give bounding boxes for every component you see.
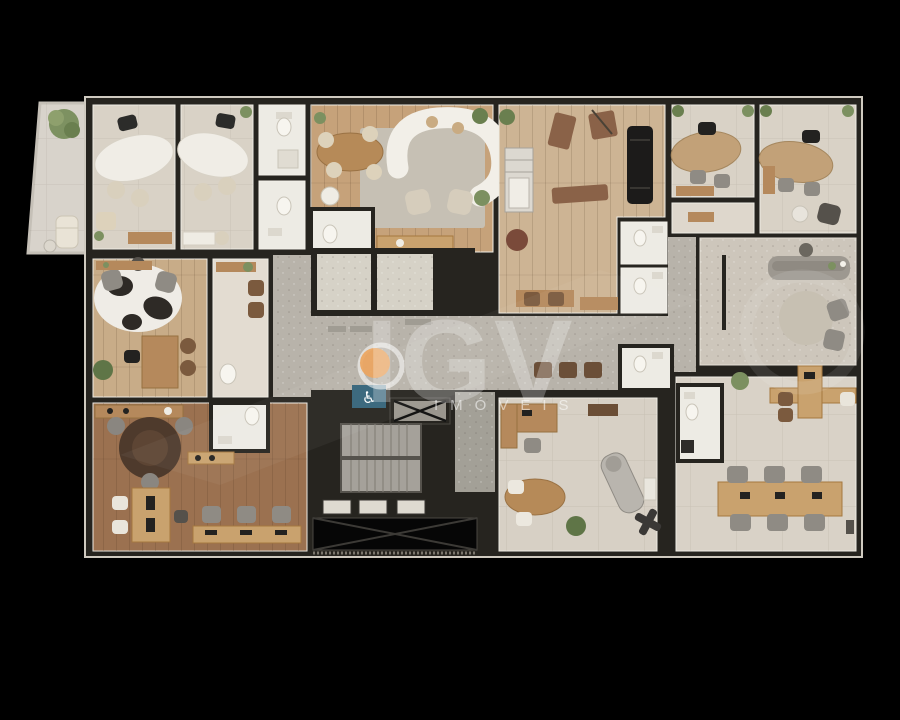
plant: [243, 262, 253, 272]
guest-chair: [690, 170, 706, 184]
guest-chair: [194, 183, 212, 201]
chair: [174, 510, 188, 523]
plant: [499, 109, 515, 125]
toilet: [277, 197, 291, 215]
chair: [248, 280, 264, 296]
corridor-wc: [620, 346, 672, 390]
plant: [474, 190, 490, 206]
terrace: [28, 103, 88, 253]
chair: [778, 408, 793, 422]
plant: [672, 105, 684, 117]
plant: [742, 105, 754, 117]
exercise-mat: [588, 110, 618, 140]
chair: [764, 466, 785, 483]
toilet: [220, 364, 236, 384]
chair: [107, 417, 125, 435]
guest-chair: [107, 181, 125, 199]
room-cowhide-office: [93, 257, 207, 397]
watermark-subtitle: IMÓVEIS: [434, 397, 581, 414]
chair: [366, 164, 382, 180]
floor-grille: [328, 326, 346, 332]
office-chair: [802, 130, 820, 143]
sink: [684, 392, 695, 399]
appliance: [681, 440, 694, 453]
cabinet: [846, 520, 854, 534]
chair: [202, 506, 221, 523]
monitor: [205, 530, 217, 535]
guest-chair: [714, 174, 730, 188]
pillow: [426, 116, 438, 128]
desk: [142, 336, 178, 388]
chair: [730, 514, 751, 531]
plant: [760, 105, 772, 117]
machine-box: [397, 500, 425, 514]
plant: [472, 108, 488, 124]
staircase: [341, 424, 421, 492]
guest-chair: [180, 360, 196, 376]
monitor: [146, 496, 155, 510]
chair: [508, 480, 524, 494]
office-chair: [698, 122, 716, 135]
chair: [215, 231, 229, 245]
hall-top-right: [672, 203, 754, 233]
toilet: [686, 404, 698, 420]
toilet: [323, 225, 337, 243]
lounge-chair: [96, 212, 116, 230]
chair: [524, 438, 541, 453]
plant: [103, 262, 109, 268]
toilet: [634, 230, 646, 246]
kitchenette-counter: [377, 236, 453, 250]
guest-chair: [804, 182, 820, 196]
toilet: [277, 118, 291, 136]
plant: [731, 372, 749, 390]
shaft-void: [313, 518, 477, 550]
room-office-c: [669, 105, 754, 197]
guest-chair: [778, 178, 794, 192]
chair: [516, 512, 532, 526]
pillow: [452, 122, 464, 134]
chair: [362, 126, 378, 142]
terrace-side-table: [44, 240, 56, 252]
monitor: [240, 530, 252, 535]
plant: [566, 516, 586, 536]
stool: [799, 243, 813, 257]
plant: [828, 262, 836, 270]
plant: [314, 112, 326, 124]
wall-segment: [722, 255, 726, 330]
lounge-bathroom: [311, 209, 373, 252]
chair: [801, 466, 822, 483]
plant: [240, 106, 252, 118]
room-office-b: [173, 105, 253, 249]
ladder-rack: [505, 148, 533, 212]
hallway-middle: [213, 259, 268, 397]
chair: [272, 506, 291, 523]
side-desk: [183, 232, 215, 245]
plant: [94, 231, 104, 241]
equipment-cart: [644, 478, 656, 500]
toilet: [634, 356, 646, 372]
chair: [237, 506, 256, 523]
sink: [652, 272, 663, 279]
chair: [778, 392, 793, 406]
chair: [318, 132, 334, 148]
floor-plan-canvas: ♿: [0, 0, 900, 720]
sink: [268, 228, 282, 236]
side-table: [792, 206, 808, 222]
office-chair: [124, 350, 140, 363]
chair: [840, 392, 855, 406]
monitor: [275, 530, 287, 535]
room-office-a: [90, 105, 178, 249]
guest-chair: [218, 177, 236, 195]
plant: [93, 360, 113, 380]
chair: [727, 466, 748, 483]
machine-box: [359, 500, 387, 514]
shower: [278, 150, 298, 168]
shelf: [588, 404, 618, 416]
monitor: [804, 372, 815, 379]
monitor: [146, 518, 155, 532]
sink: [652, 226, 663, 233]
lamp: [840, 261, 846, 267]
sink: [652, 352, 663, 359]
reformer-machine: [627, 126, 653, 204]
chair: [112, 496, 128, 510]
terrace-lounge-chair: [56, 216, 78, 248]
chair: [112, 520, 128, 534]
chair: [326, 162, 342, 178]
floor-plan: ♿: [0, 0, 900, 720]
guest-chair: [180, 338, 196, 354]
chair: [804, 514, 825, 531]
waiting-chair: [584, 362, 602, 378]
console: [688, 212, 714, 222]
stair-landing-divider: [341, 456, 421, 460]
sideboard: [128, 232, 172, 244]
plant: [842, 105, 854, 117]
chair: [767, 514, 788, 531]
cabinet: [763, 166, 775, 194]
side-table: [321, 187, 339, 205]
chair: [248, 302, 264, 318]
guest-chair: [131, 189, 149, 207]
sideboard: [676, 186, 714, 196]
exercise-ball: [506, 229, 528, 251]
sink: [396, 239, 404, 247]
room-lounge: [311, 105, 502, 252]
room-coworking: [676, 366, 856, 551]
machine-box: [323, 500, 351, 514]
